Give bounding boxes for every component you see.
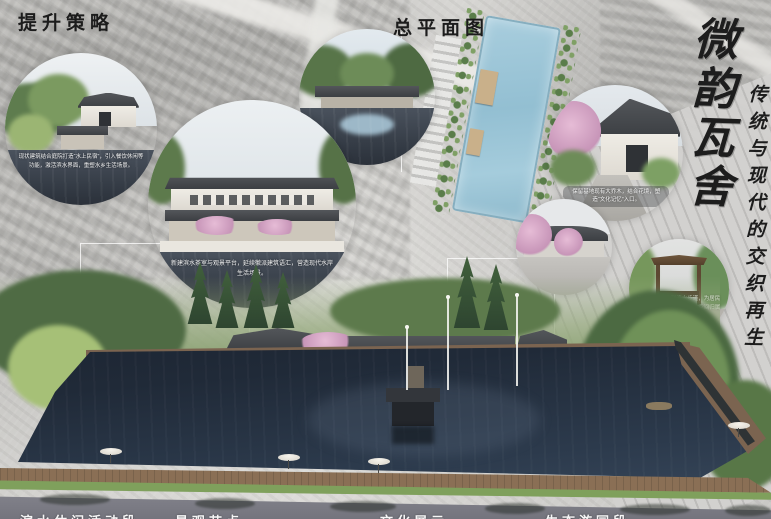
tree-shadow — [40, 494, 110, 505]
tree-shadow — [195, 498, 255, 509]
blossom-tree — [554, 228, 583, 257]
poster-main-title-calligraphy: 微韵瓦舍 — [682, 15, 733, 226]
float-pavilion-body — [392, 402, 434, 426]
tree-shadow — [620, 504, 690, 515]
pavilion-reflection — [392, 426, 434, 444]
section-label: 景观节点 — [175, 511, 243, 519]
lamp-post — [406, 328, 408, 390]
teahouse-roof — [315, 86, 418, 97]
section-label: 文化展示 — [380, 511, 448, 519]
tree-shadow — [725, 505, 771, 516]
shrub — [8, 114, 54, 154]
waterfront-panorama: 滨水休闲活动段 景观节点 文化展示 生态游园段 — [0, 270, 771, 519]
shrub — [642, 158, 680, 188]
blossom — [194, 216, 240, 235]
boat — [646, 402, 672, 410]
lamp-post — [516, 296, 518, 386]
window-row — [190, 195, 315, 205]
house-door — [99, 112, 111, 126]
poster-subtitle-calligraphy: 传统与现代的交织再生 — [741, 84, 765, 384]
deck-edge — [160, 241, 343, 251]
design-poster: 现状建筑结合庭院打造“水上民宿”，引入餐饮休闲等功能，激活滨水界面，重塑水乡生活… — [0, 0, 771, 519]
umbrella — [278, 454, 300, 461]
umbrella — [728, 422, 750, 429]
site-plan-title: 总平面图 — [393, 13, 489, 40]
tree-shadow — [485, 503, 545, 514]
pavilion-body — [61, 135, 104, 149]
shrub — [550, 150, 596, 185]
float-pavilion-roof — [386, 388, 440, 402]
section-label: 生态游园段 — [545, 511, 630, 519]
tree-mass-mid — [330, 278, 560, 344]
pavilion-roof — [57, 126, 109, 135]
blossom — [256, 219, 298, 236]
lower-eave — [165, 210, 340, 220]
section-label: 滨水休闲活动段 — [20, 511, 139, 519]
render-circle-strategy: 现状建筑结合庭院打造“水上民宿”，引入餐饮休闲等功能，激活滨水界面，重塑水乡生活… — [5, 53, 157, 205]
strategy-title: 提升策略 — [18, 8, 114, 35]
umbrella — [100, 448, 122, 455]
lamp-post — [447, 298, 449, 390]
umbrella — [368, 458, 390, 465]
caption-text: 现状建筑结合庭院打造“水上民宿”，引入餐饮休闲等功能，激活滨水界面，重塑水乡生活… — [17, 153, 145, 171]
